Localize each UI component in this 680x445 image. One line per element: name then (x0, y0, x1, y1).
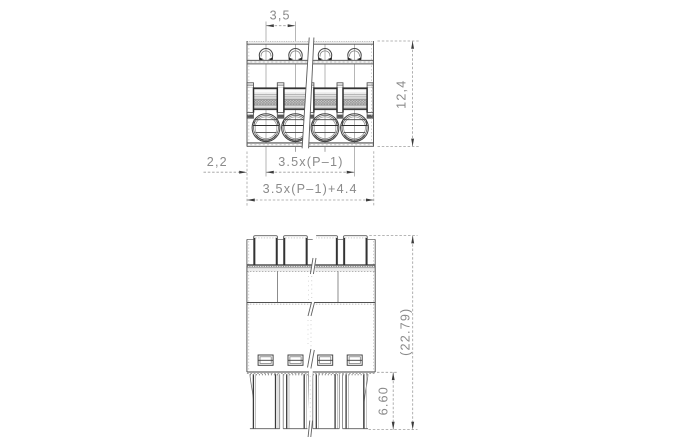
svg-text:3.5x(P–1): 3.5x(P–1) (278, 155, 343, 169)
svg-text:3.5x(P–1)+4.4: 3.5x(P–1)+4.4 (263, 182, 358, 196)
svg-text:6.60: 6.60 (377, 386, 391, 415)
svg-text:(22.79): (22.79) (398, 308, 412, 356)
svg-text:2,2: 2,2 (207, 155, 228, 169)
svg-text:12,4: 12,4 (395, 80, 409, 109)
svg-text:3,5: 3,5 (270, 8, 291, 22)
